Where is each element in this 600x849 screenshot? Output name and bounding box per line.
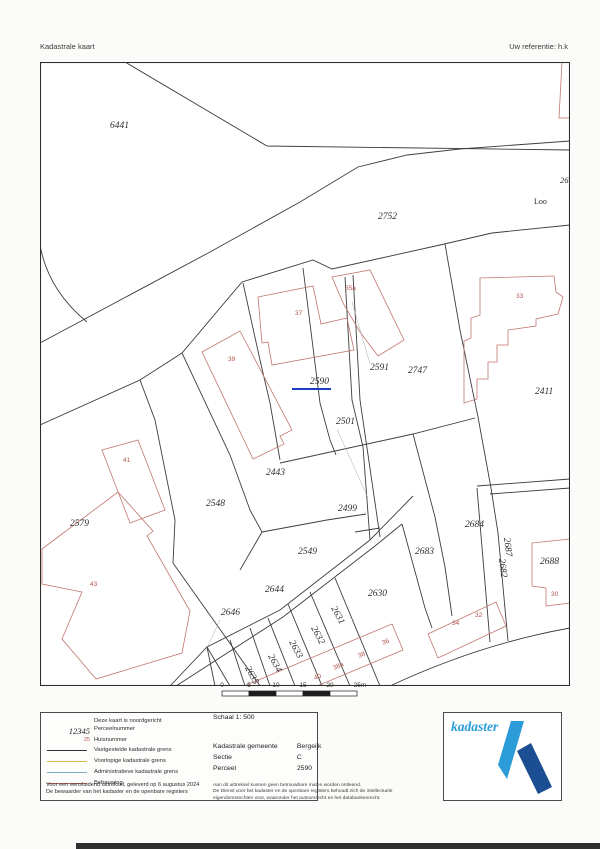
parcel-label: 2630 bbox=[368, 589, 387, 599]
parcel-label: 2633 bbox=[286, 639, 304, 661]
svg-text:5: 5 bbox=[247, 682, 251, 689]
gemeente-label: Kadastrale gemeente bbox=[213, 743, 295, 750]
north-note: Deze kaart is noordgericht bbox=[94, 718, 162, 724]
house-number-label: 35a bbox=[345, 285, 356, 292]
disclaimer: Aan dit uittreksel kunnen geen betrouwba… bbox=[213, 783, 443, 802]
kadaster-logo-box: kadaster bbox=[443, 712, 562, 801]
parcel-label: 2591 bbox=[370, 363, 389, 373]
parcel-label: 2682 bbox=[496, 558, 508, 578]
provisional-boundary-line-symbol bbox=[47, 761, 87, 762]
cadastral-map-svg: 6441275226259025912747250124112443254825… bbox=[40, 62, 570, 686]
cadastral-map: 6441275226259025912747250124112443254825… bbox=[40, 62, 570, 686]
administrative-boundary-line-symbol bbox=[47, 772, 87, 773]
house-number-label: 37 bbox=[295, 310, 303, 317]
delivery-note: Voor een eensluidend uittreksel, gelever… bbox=[46, 782, 199, 789]
house-number-label: 39 bbox=[228, 356, 236, 363]
scale-bar-segments bbox=[222, 691, 357, 696]
svg-text:25m: 25m bbox=[354, 682, 367, 689]
house-number-label: 36 bbox=[381, 637, 391, 646]
established-boundary-label: Vastgestelde kadastrale grens bbox=[94, 747, 172, 753]
house-number-label: 32 bbox=[475, 612, 483, 619]
house-number-label: 34 bbox=[452, 620, 460, 627]
perceel-label: Perceel bbox=[213, 765, 295, 772]
page-title: Kadastrale kaart bbox=[40, 42, 95, 51]
scale-text: Schaal 1: 500 bbox=[213, 714, 255, 721]
cadastral-extract-page: { "header": { "title": "Kadastrale kaart… bbox=[0, 0, 600, 849]
gemeente-value: Bergeijk bbox=[297, 743, 322, 750]
legend-house-number-label: Huisnummer bbox=[94, 737, 127, 743]
parcel-label: 26 bbox=[560, 175, 569, 185]
parcel-label: 2634 bbox=[265, 653, 283, 675]
parcel-label: 2684 bbox=[465, 520, 484, 530]
established-boundary-line-symbol bbox=[47, 750, 87, 751]
scale-bar: 0 5 10 15 20 25m bbox=[210, 679, 380, 703]
legend-house-number-symbol: 25 bbox=[46, 737, 90, 743]
parcel-label: 2548 bbox=[206, 499, 225, 509]
label-leader-lines bbox=[208, 302, 370, 646]
parcel-label: 2747 bbox=[408, 366, 428, 376]
svg-text:20: 20 bbox=[326, 682, 334, 689]
parcel-label: 2752 bbox=[378, 212, 397, 222]
parcel-label: 2646 bbox=[221, 608, 240, 618]
provisional-boundary-label: Voorlopige kadastrale grens bbox=[94, 758, 166, 764]
perceel-value: 2590 bbox=[297, 765, 312, 772]
house-number-label: 33 bbox=[516, 293, 524, 300]
reference-text: Uw referentie: h.k bbox=[509, 42, 568, 51]
map-border bbox=[41, 63, 570, 686]
house-number-label: 30 bbox=[551, 591, 559, 598]
svg-text:15: 15 bbox=[299, 682, 307, 689]
sectie-value: C bbox=[297, 754, 302, 761]
parcel-label: 2644 bbox=[265, 585, 284, 595]
parcel-boundaries bbox=[40, 62, 570, 686]
house-number-label: 41 bbox=[123, 457, 131, 464]
parcel-label: 2687 bbox=[501, 537, 513, 558]
sectie-label: Sectie bbox=[213, 754, 295, 761]
parcel-label: 2499 bbox=[338, 504, 357, 514]
administrative-boundary-label: Administratieve kadastrale grens bbox=[94, 769, 178, 775]
parcel-label: 2632 bbox=[308, 625, 326, 647]
svg-text:0: 0 bbox=[220, 682, 224, 689]
building-outlines bbox=[42, 62, 570, 686]
parcel-label: 6441 bbox=[110, 121, 129, 131]
parcel-label: 2443 bbox=[266, 468, 285, 478]
parcel-label: 2579 bbox=[70, 519, 89, 529]
legend-parcel-number-symbol: 12345 bbox=[46, 726, 90, 736]
parcel-label: 2631 bbox=[328, 605, 346, 626]
svg-text:10: 10 bbox=[272, 682, 280, 689]
scan-edge-artifact bbox=[76, 843, 600, 849]
legend-parcel-number-label: Perceelnummer bbox=[94, 726, 135, 732]
parcel-label: 2501 bbox=[336, 417, 355, 427]
house-number-label: 43 bbox=[90, 581, 98, 588]
road-label: Loo bbox=[534, 197, 547, 206]
legend-footer: Voor een eensluidend uittreksel, gelever… bbox=[46, 782, 199, 796]
parcel-label: 2683 bbox=[415, 547, 434, 557]
keeper-note: De bewaarder van het kadaster en de open… bbox=[46, 789, 199, 796]
kadaster-logo-icon bbox=[445, 717, 557, 799]
parcel-label: 2549 bbox=[298, 547, 317, 557]
scale-bar-ticks: 0 5 10 15 20 25m bbox=[220, 682, 366, 689]
parcel-label: 2688 bbox=[540, 557, 559, 567]
parcel-label: 2411 bbox=[535, 387, 553, 397]
subject-parcel-label: 2590 bbox=[310, 377, 329, 387]
disclaimer-line-3: eigendomsrechten voor, waaronder het aut… bbox=[213, 796, 443, 802]
